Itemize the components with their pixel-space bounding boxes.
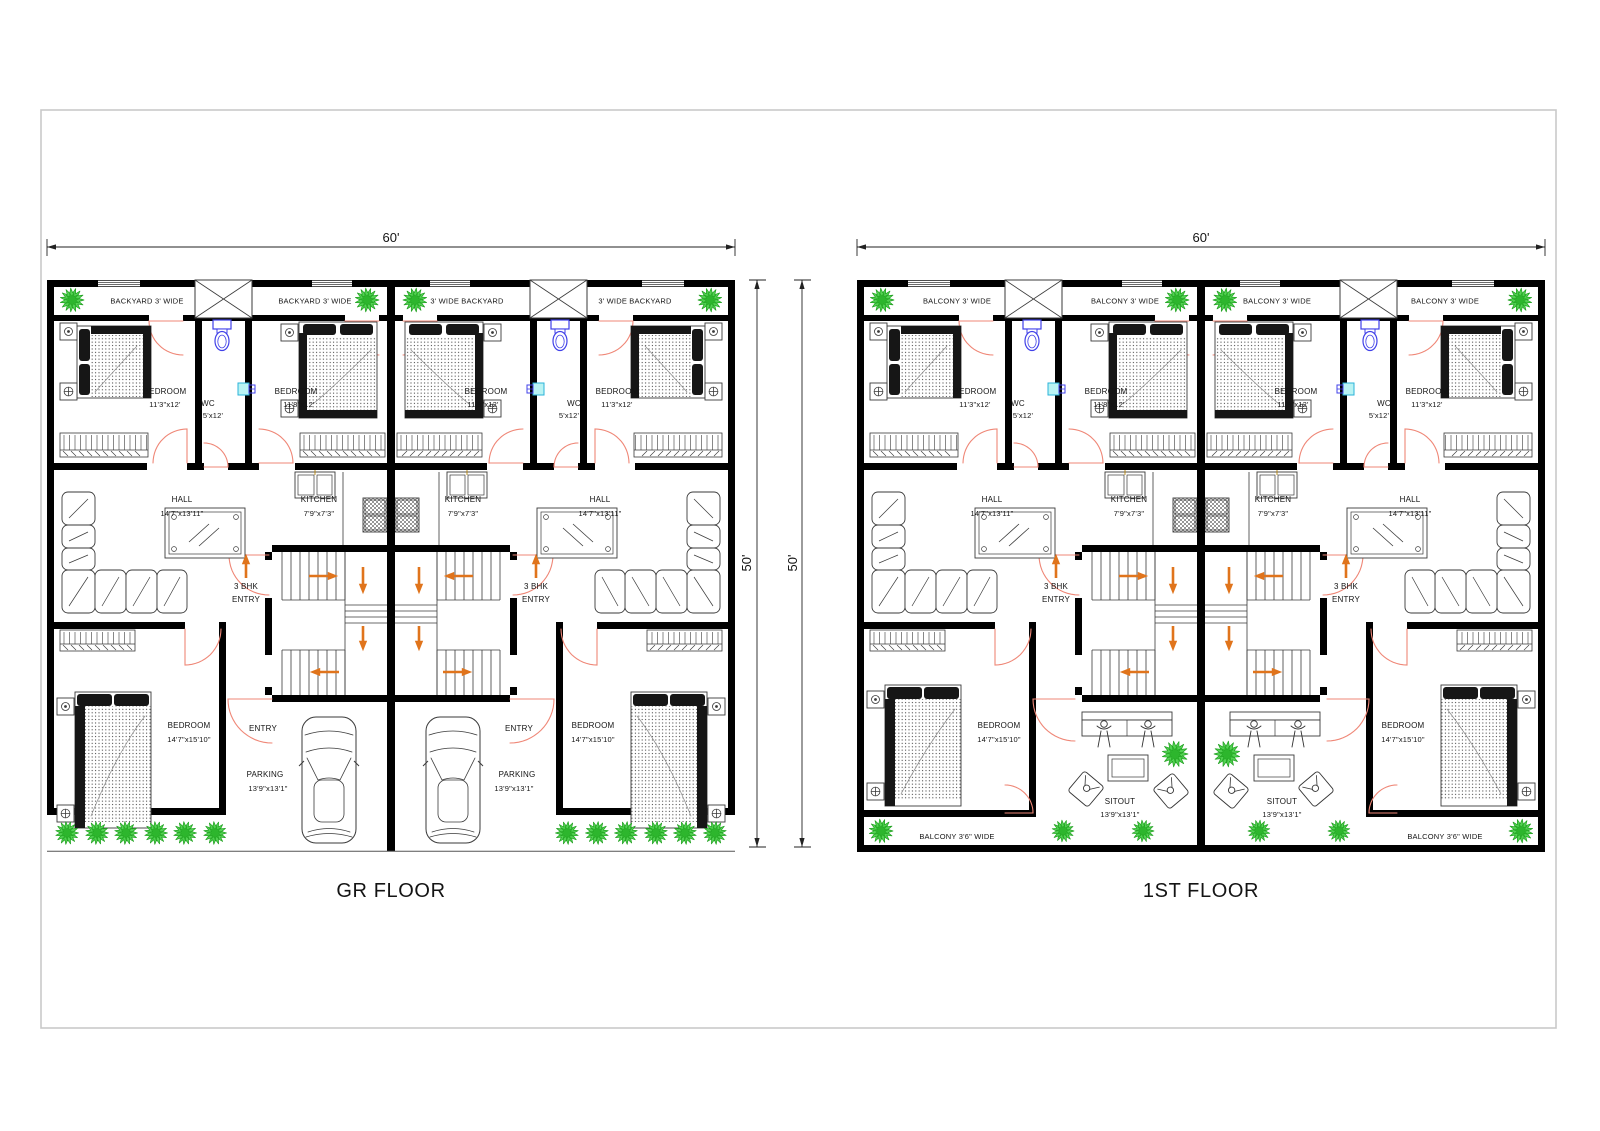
window bbox=[642, 281, 684, 287]
stove-icon bbox=[363, 498, 387, 532]
room-size-hall-left: 14'7"x13'11" bbox=[971, 509, 1014, 518]
bedside-table bbox=[1518, 783, 1535, 800]
room-size-kitchen-left: 7'9"x7'3" bbox=[304, 509, 335, 518]
bedside-table bbox=[867, 691, 884, 708]
room-size-parking-right: 13'9"x13'1" bbox=[494, 784, 533, 793]
room-label-wc-right: WC bbox=[567, 399, 581, 408]
bed bbox=[887, 326, 961, 398]
bedside-table bbox=[57, 805, 74, 822]
room-label-bedroom-mid-right: BEDROOM bbox=[465, 387, 508, 396]
stove-icon bbox=[395, 498, 419, 532]
bed bbox=[631, 692, 707, 828]
room-size-wc-left: 5'x12' bbox=[203, 411, 224, 420]
bedside-table bbox=[1091, 324, 1108, 341]
strip-label: BACKYARD 3' WIDE bbox=[278, 297, 351, 306]
room-label-bedroom-mid-left: BEDROOM bbox=[275, 387, 318, 396]
wardrobe bbox=[1110, 433, 1195, 457]
window bbox=[908, 281, 950, 287]
room-size-sitout-right: 13'9"x13'1" bbox=[1262, 810, 1301, 819]
room-label-bedroom-front-right: BEDROOM bbox=[596, 387, 639, 396]
bedside-table bbox=[867, 783, 884, 800]
bedside-table bbox=[484, 324, 501, 341]
wardrobe bbox=[870, 630, 945, 651]
room-size-hall-left: 14'7"x13'11" bbox=[161, 509, 204, 518]
entry-3bhk-label-right: ENTRY bbox=[1332, 595, 1360, 604]
room-size-bedroom-front-left: 11'3"x12' bbox=[959, 400, 991, 409]
room-size-kitchen-right: 7'9"x7'3" bbox=[448, 509, 479, 518]
window bbox=[98, 281, 140, 287]
room-label-wc-right: WC bbox=[1377, 399, 1391, 408]
room-size-wc-right: 5'x12' bbox=[1369, 411, 1390, 420]
room-size-bedroom-back-left: 14'7"x15'10" bbox=[167, 735, 211, 744]
bedside-table bbox=[1294, 324, 1311, 341]
window bbox=[1452, 281, 1494, 287]
room-size-bedroom-mid-left: 11'8"x12' bbox=[283, 400, 315, 409]
room-size-parking-left: 13'9"x13'1" bbox=[248, 784, 287, 793]
wardrobe bbox=[300, 433, 385, 457]
drawing-canvas: BACKYARD 3' WIDEBACKYARD 3' WIDE3' WIDE … bbox=[0, 0, 1600, 1131]
room-label-wc-left: WC bbox=[201, 399, 215, 408]
room-label-bedroom-back-left: BEDROOM bbox=[168, 721, 211, 730]
entry-3bhk-label-left: 3 BHK bbox=[234, 582, 259, 591]
wardrobe bbox=[634, 433, 722, 457]
gr-floor-title: GR FLOOR bbox=[336, 880, 445, 902]
car-icon bbox=[299, 717, 359, 843]
bedside-table bbox=[708, 698, 725, 715]
room-size-kitchen-right: 7'9"x7'3" bbox=[1258, 509, 1289, 518]
first-height-dimension: 50' bbox=[785, 555, 800, 572]
entry-3bhk-label-left: 3 BHK bbox=[1044, 582, 1069, 591]
room-size-bedroom-mid-left: 11'8"x12' bbox=[1093, 400, 1125, 409]
room-size-wc-right: 5'x12' bbox=[559, 411, 580, 420]
window bbox=[430, 281, 470, 287]
room-label-parking-right: PARKING bbox=[499, 770, 536, 779]
strip-label: BACKYARD 3' WIDE bbox=[110, 297, 183, 306]
strip-label: BALCONY 3' WIDE bbox=[1243, 297, 1311, 306]
room-label-parking-left: PARKING bbox=[247, 770, 284, 779]
shaft bbox=[195, 280, 252, 318]
balcony-bottom-label-right: BALCONY 3'6" WIDE bbox=[1407, 832, 1482, 841]
washbasin-icon bbox=[1337, 383, 1354, 395]
bedside-table bbox=[281, 324, 298, 341]
room-size-hall-right: 14'7"x13'11" bbox=[579, 509, 622, 518]
room-label-bedroom-front-left: BEDROOM bbox=[954, 387, 997, 396]
room-label-sitout-right: SITOUT bbox=[1267, 797, 1297, 806]
shaft bbox=[530, 280, 587, 318]
entry-3bhk-label-right: 3 BHK bbox=[1334, 582, 1359, 591]
room-size-bedroom-back-left: 14'7"x15'10" bbox=[977, 735, 1021, 744]
room-label-hall-left: HALL bbox=[982, 495, 1003, 504]
strip-label: BALCONY 3' WIDE bbox=[1411, 297, 1479, 306]
bedside-table bbox=[708, 805, 725, 822]
wardrobe bbox=[1457, 630, 1532, 651]
bed bbox=[631, 326, 705, 398]
room-label-hall-right: HALL bbox=[1400, 495, 1421, 504]
wardrobe bbox=[870, 433, 958, 457]
gr-width-dimension: 60' bbox=[383, 230, 400, 245]
window bbox=[1240, 281, 1280, 287]
shaft bbox=[1005, 280, 1062, 318]
bedside-table bbox=[870, 323, 887, 340]
strip-label: 3' WIDE BACKYARD bbox=[598, 297, 672, 306]
room-label-bedroom-back-right: BEDROOM bbox=[572, 721, 615, 730]
room-label-bedroom-mid-right: BEDROOM bbox=[1275, 387, 1318, 396]
first-width-dimension: 60' bbox=[1193, 230, 1210, 245]
washbasin-icon bbox=[1048, 383, 1065, 395]
window bbox=[312, 281, 352, 287]
balcony-bottom-label-left: BALCONY 3'6" WIDE bbox=[919, 832, 994, 841]
bedside-table bbox=[1515, 323, 1532, 340]
room-size-wc-left: 5'x12' bbox=[1013, 411, 1034, 420]
washbasin-icon bbox=[527, 383, 544, 395]
room-size-bedroom-front-right: 11'3"x12' bbox=[1411, 400, 1443, 409]
room-size-bedroom-back-right: 14'7"x15'10" bbox=[1381, 735, 1425, 744]
bedside-table bbox=[60, 323, 77, 340]
entry-label-left: ENTRY bbox=[249, 724, 277, 733]
entry-3bhk-label-left: ENTRY bbox=[232, 595, 260, 604]
entry-3bhk-label-left: ENTRY bbox=[1042, 595, 1070, 604]
room-size-bedroom-mid-right: 11'8"x12' bbox=[467, 400, 499, 409]
wardrobe bbox=[647, 630, 722, 651]
sheet: BACKYARD 3' WIDEBACKYARD 3' WIDE3' WIDE … bbox=[0, 0, 1600, 1131]
room-label-bedroom-back-right: BEDROOM bbox=[1382, 721, 1425, 730]
strip-label: BALCONY 3' WIDE bbox=[923, 297, 991, 306]
room-label-kitchen-right: KITCHEN bbox=[445, 495, 482, 504]
stove-icon bbox=[1205, 498, 1229, 532]
car-icon bbox=[423, 717, 483, 843]
wardrobe bbox=[1207, 433, 1292, 457]
room-size-bedroom-front-left: 11'3"x12' bbox=[149, 400, 181, 409]
bedside-table bbox=[1515, 383, 1532, 400]
wardrobe bbox=[60, 630, 135, 651]
entry-label-right: ENTRY bbox=[505, 724, 533, 733]
wardrobe bbox=[397, 433, 482, 457]
room-label-wc-left: WC bbox=[1011, 399, 1025, 408]
bedside-table bbox=[60, 383, 77, 400]
bedside-table bbox=[1518, 691, 1535, 708]
room-label-kitchen-left: KITCHEN bbox=[1111, 495, 1148, 504]
room-label-hall-right: HALL bbox=[590, 495, 611, 504]
bedside-table bbox=[870, 383, 887, 400]
bed bbox=[75, 692, 151, 828]
room-size-bedroom-front-right: 11'3"x12' bbox=[601, 400, 633, 409]
bedside-table bbox=[57, 698, 74, 715]
bed bbox=[77, 326, 151, 398]
first-floor-title: 1ST FLOOR bbox=[1143, 880, 1259, 902]
room-label-bedroom-front-left: BEDROOM bbox=[144, 387, 187, 396]
room-size-sitout-left: 13'9"x13'1" bbox=[1100, 810, 1139, 819]
room-label-bedroom-back-left: BEDROOM bbox=[978, 721, 1021, 730]
stove-icon bbox=[1173, 498, 1197, 532]
wardrobe bbox=[60, 433, 148, 457]
strip-label: 3' WIDE BACKYARD bbox=[430, 297, 504, 306]
room-label-kitchen-left: KITCHEN bbox=[301, 495, 338, 504]
shaft bbox=[1340, 280, 1397, 318]
room-size-hall-right: 14'7"x13'11" bbox=[1389, 509, 1432, 518]
entry-3bhk-label-right: ENTRY bbox=[522, 595, 550, 604]
bed bbox=[1441, 326, 1515, 398]
bedside-table bbox=[705, 383, 722, 400]
bed bbox=[1441, 685, 1517, 806]
window bbox=[1122, 281, 1162, 287]
wardrobe bbox=[1444, 433, 1532, 457]
room-label-bedroom-front-right: BEDROOM bbox=[1406, 387, 1449, 396]
room-label-kitchen-right: KITCHEN bbox=[1255, 495, 1292, 504]
strip-label: BALCONY 3' WIDE bbox=[1091, 297, 1159, 306]
bedside-table bbox=[705, 323, 722, 340]
bed bbox=[885, 685, 961, 806]
room-label-hall-left: HALL bbox=[172, 495, 193, 504]
washbasin-icon bbox=[238, 383, 255, 395]
entry-3bhk-label-right: 3 BHK bbox=[524, 582, 549, 591]
room-label-bedroom-mid-left: BEDROOM bbox=[1085, 387, 1128, 396]
room-label-sitout-left: SITOUT bbox=[1105, 797, 1135, 806]
room-size-bedroom-mid-right: 11'8"x12' bbox=[1277, 400, 1309, 409]
room-size-bedroom-back-right: 14'7"x15'10" bbox=[571, 735, 615, 744]
room-size-kitchen-left: 7'9"x7'3" bbox=[1114, 509, 1145, 518]
gr-height-dimension: 50' bbox=[739, 555, 754, 572]
